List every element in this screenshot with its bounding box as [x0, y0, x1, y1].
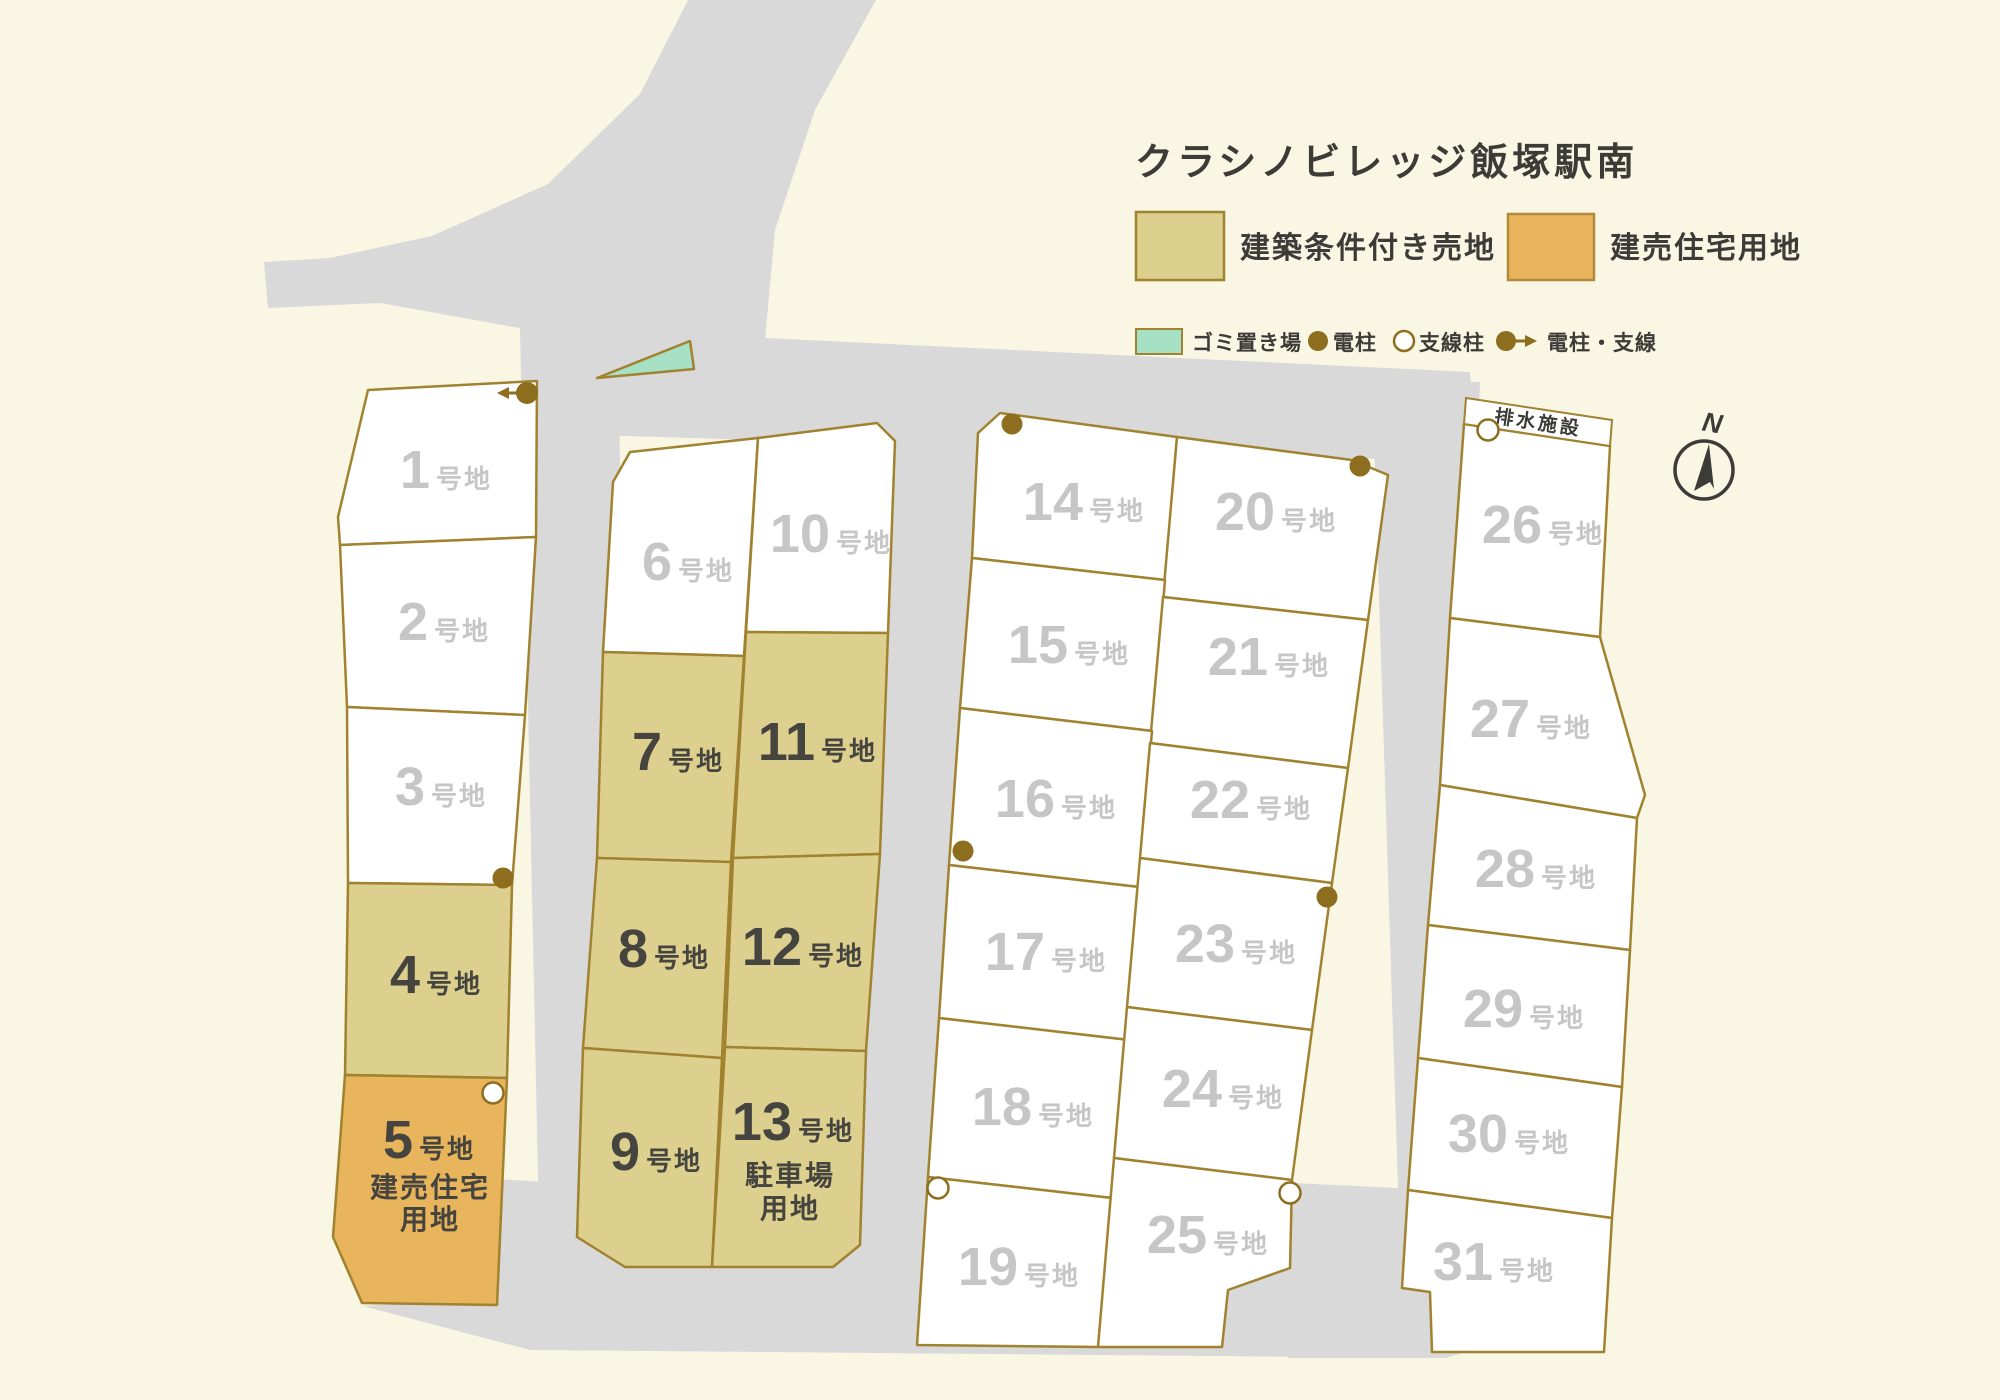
lot-30-suffix: 号地	[1514, 1128, 1570, 1158]
lot-10-suffix: 号地	[836, 528, 892, 558]
lot-21[interactable]: 21 号地	[1150, 597, 1368, 768]
lot-1-shape[interactable]	[338, 381, 537, 545]
lot-11-suffix: 号地	[821, 736, 877, 766]
lot-13[interactable]: 13 号地 駐車場 用地	[712, 1047, 866, 1267]
lot-17[interactable]: 17 号地	[939, 865, 1139, 1040]
legend-pole-icon	[1308, 331, 1328, 351]
lot-7-number: 7	[632, 722, 662, 782]
lot-19-suffix: 号地	[1024, 1261, 1080, 1291]
lot-5-number: 5	[383, 1110, 413, 1170]
lot-3-number: 3	[395, 757, 425, 817]
lot-7[interactable]: 7 号地	[597, 652, 744, 862]
site-map: 1 号地 2 号地 3 号地 4 号地 5 号地 建売住宅 用地 6 号地 10…	[0, 0, 2000, 1400]
lot-12-suffix: 号地	[808, 941, 864, 971]
legend-guy-pole-icon	[1394, 331, 1414, 351]
utility-pole-icon	[953, 841, 974, 862]
lot-10-number: 10	[770, 504, 830, 564]
lot-4-suffix: 号地	[426, 969, 482, 999]
lot-13-use-line2: 用地	[760, 1193, 820, 1224]
lot-2-suffix: 号地	[434, 616, 490, 646]
lot-4-number: 4	[390, 945, 420, 1005]
lot-1-number: 1	[400, 440, 430, 500]
lot-8-suffix: 号地	[654, 943, 710, 973]
lot-6-number: 6	[642, 532, 672, 592]
lot-26-suffix: 号地	[1548, 519, 1604, 549]
lot-21-number: 21	[1208, 627, 1268, 687]
lot-26-number: 26	[1482, 495, 1542, 555]
lot-9-suffix: 号地	[646, 1146, 702, 1176]
lot-8[interactable]: 8 号地	[583, 858, 731, 1058]
legend-label-pole-wire: 電柱・支線	[1547, 331, 1657, 355]
lot-1-suffix: 号地	[436, 464, 492, 494]
lot-11[interactable]: 11 号地	[733, 632, 888, 858]
legend-label-built-for-sale: 建売住宅用地	[1610, 231, 1802, 265]
legend-swatch-conditional	[1136, 212, 1224, 280]
lot-13-number: 13	[732, 1092, 792, 1152]
utility-pole-icon	[1317, 887, 1338, 908]
lot-16[interactable]: 16 号地	[949, 708, 1152, 887]
lot-24[interactable]: 24 号地	[1114, 1007, 1312, 1180]
legend-label-guy-pole: 支線柱	[1419, 331, 1485, 355]
lot-6-shape[interactable]	[603, 438, 758, 656]
lot-15-number: 15	[1008, 615, 1068, 675]
lot-13-suffix: 号地	[798, 1116, 854, 1146]
lot-19[interactable]: 19 号地	[917, 1177, 1112, 1347]
lot-14-number: 14	[1023, 472, 1083, 532]
lot-20-number: 20	[1215, 482, 1275, 542]
lot-14-suffix: 号地	[1089, 496, 1145, 526]
utility-pole-icon	[493, 868, 514, 889]
lot-28-suffix: 号地	[1541, 863, 1597, 893]
lot-3[interactable]: 3 号地	[347, 707, 525, 885]
lot-18[interactable]: 18 号地	[928, 1018, 1129, 1198]
lot-22-number: 22	[1190, 770, 1250, 830]
legend-trash-icon	[1136, 329, 1182, 354]
lot-21-suffix: 号地	[1274, 651, 1330, 681]
lot-13-shape[interactable]	[712, 1047, 866, 1267]
guy-pole-icon	[928, 1178, 949, 1199]
lot-11-number: 11	[758, 712, 815, 772]
lot-8-number: 8	[618, 919, 648, 979]
lot-10[interactable]: 10 号地	[746, 423, 895, 633]
lot-13-use-line1: 駐車場	[745, 1160, 835, 1191]
lot-16-suffix: 号地	[1061, 793, 1117, 823]
guy-pole-icon	[1478, 420, 1499, 441]
lot-6[interactable]: 6 号地	[603, 438, 758, 656]
utility-pole-icon	[1002, 414, 1023, 435]
lot-5-use-line2: 用地	[400, 1204, 460, 1235]
lot-2-number: 2	[398, 592, 428, 652]
lot-18-number: 18	[972, 1077, 1032, 1137]
lot-4[interactable]: 4 号地	[345, 883, 512, 1078]
lot-17-number: 17	[985, 922, 1045, 982]
lot-31[interactable]: 31 号地	[1402, 1190, 1612, 1352]
lot-31-suffix: 号地	[1499, 1256, 1555, 1286]
lot-31-number: 31	[1433, 1232, 1493, 1292]
lot-18-suffix: 号地	[1038, 1101, 1094, 1131]
page-title: クラシノビレッジ飯塚駅南	[1135, 142, 1638, 184]
lot-6-suffix: 号地	[678, 556, 734, 586]
legend-label-trash: ゴミ置き場	[1192, 331, 1302, 355]
lot-9[interactable]: 9 号地	[577, 1048, 722, 1267]
lot-5-suffix: 号地	[419, 1134, 475, 1164]
lot-26[interactable]: 26 号地	[1450, 424, 1610, 637]
lot-17-suffix: 号地	[1051, 946, 1107, 976]
lot-1[interactable]: 1 号地	[338, 381, 537, 545]
lot-24-suffix: 号地	[1228, 1083, 1284, 1113]
lot-19-number: 19	[958, 1237, 1018, 1297]
lot-23[interactable]: 23 号地	[1127, 858, 1332, 1030]
utility-pole-icon	[1350, 456, 1371, 477]
lot-28-number: 28	[1475, 839, 1535, 899]
guy-pole-icon	[1280, 1183, 1301, 1204]
lot-29-suffix: 号地	[1529, 1003, 1585, 1033]
lot-22-suffix: 号地	[1256, 794, 1312, 824]
lot-12[interactable]: 12 号地	[725, 854, 880, 1051]
lot-27-number: 27	[1470, 689, 1530, 749]
lot-24-number: 24	[1162, 1059, 1222, 1119]
legend-label-pole: 電柱	[1333, 331, 1377, 355]
lot-5-use-line1: 建売住宅	[370, 1171, 490, 1203]
lot-30-number: 30	[1448, 1104, 1508, 1164]
lot-5[interactable]: 5 号地 建売住宅 用地	[333, 1075, 507, 1305]
lot-23-suffix: 号地	[1241, 938, 1297, 968]
lot-20-suffix: 号地	[1281, 506, 1337, 536]
lot-27-suffix: 号地	[1536, 713, 1592, 743]
legend-label-conditional: 建築条件付き売地	[1240, 231, 1496, 265]
lot-15[interactable]: 15 号地	[960, 558, 1165, 731]
lot-3-suffix: 号地	[431, 781, 487, 811]
lot-16-number: 16	[995, 769, 1055, 829]
lot-9-number: 9	[610, 1122, 640, 1182]
lot-map-page: 1 号地 2 号地 3 号地 4 号地 5 号地 建売住宅 用地 6 号地 10…	[0, 0, 2000, 1400]
guy-pole-icon	[483, 1083, 504, 1104]
lot-25-suffix: 号地	[1213, 1229, 1269, 1259]
lot-23-number: 23	[1175, 914, 1235, 974]
lot-7-suffix: 号地	[668, 746, 724, 776]
lot-25-number: 25	[1147, 1205, 1207, 1265]
legend-swatch-built-for-sale	[1508, 214, 1594, 280]
lot-12-number: 12	[742, 917, 802, 977]
lot-2[interactable]: 2 号地	[340, 537, 536, 715]
lot-29-number: 29	[1463, 979, 1523, 1039]
lot-14[interactable]: 14 号地	[972, 413, 1177, 580]
lot-15-suffix: 号地	[1074, 639, 1130, 669]
